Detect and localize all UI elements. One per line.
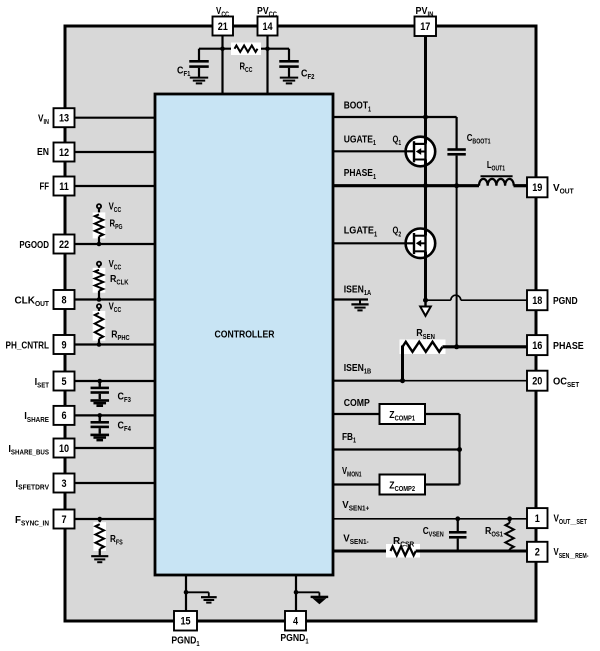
svg-text:15: 15 [180,616,191,628]
svg-text:PHASE: PHASE [553,340,584,352]
svg-text:VIN: VIN [38,111,49,126]
svg-text:PH_CNTRL: PH_CNTRL [5,338,49,350]
svg-text:1: 1 [535,513,541,525]
svg-text:8: 8 [61,295,67,307]
svg-text:PGND1: PGND1 [171,635,200,648]
svg-text:PGND1: PGND1 [280,632,309,645]
svg-text:10: 10 [59,443,70,455]
svg-text:FSYNC_IN: FSYNC_IN [15,514,49,527]
svg-text:VOUT__SET: VOUT__SET [554,513,588,527]
svg-text:4: 4 [293,616,299,628]
svg-text:PGND: PGND [553,295,578,307]
svg-text:7: 7 [61,514,67,526]
svg-text:14: 14 [262,21,273,33]
svg-text:PVCC: PVCC [257,5,277,18]
svg-text:18: 18 [532,295,543,307]
svg-text:COMP: COMP [344,397,371,409]
svg-text:3: 3 [61,478,67,490]
svg-text:PGOOD: PGOOD [19,239,49,250]
svg-text:2: 2 [535,547,541,559]
svg-text:19: 19 [532,183,543,195]
svg-text:ISET: ISET [35,376,49,389]
svg-text:BOOT1: BOOT1 [344,100,372,114]
svg-text:11: 11 [59,181,69,193]
svg-text:12: 12 [59,147,70,159]
svg-text:9: 9 [61,340,67,352]
svg-text:PVIN: PVIN [416,5,434,18]
svg-text:EN: EN [37,146,49,158]
svg-text:VOUT: VOUT [553,183,574,196]
svg-text:LGATE1: LGATE1 [344,225,378,238]
svg-text:OCSET: OCSET [553,376,579,389]
svg-text:22: 22 [59,239,70,251]
svg-text:13: 13 [59,113,70,125]
svg-text:20: 20 [532,376,543,388]
svg-text:ISFETDRV: ISFETDRV [15,479,49,492]
svg-text:21: 21 [218,21,229,33]
svg-text:CLKOUT: CLKOUT [14,295,49,308]
svg-text:PHASE1: PHASE1 [344,167,377,181]
svg-text:16: 16 [532,340,543,352]
svg-text:5: 5 [61,376,67,388]
svg-text:FF: FF [39,180,49,191]
svg-text:ISHARE_BUS: ISHARE_BUS [8,443,49,456]
svg-text:ISHARE: ISHARE [24,411,49,424]
svg-text:17: 17 [420,21,431,33]
svg-text:CONTROLLER: CONTROLLER [215,329,275,340]
svg-text:UGATE1: UGATE1 [344,134,377,148]
svg-text:VSEN__REM-: VSEN__REM- [554,546,589,560]
svg-text:6: 6 [61,411,67,423]
